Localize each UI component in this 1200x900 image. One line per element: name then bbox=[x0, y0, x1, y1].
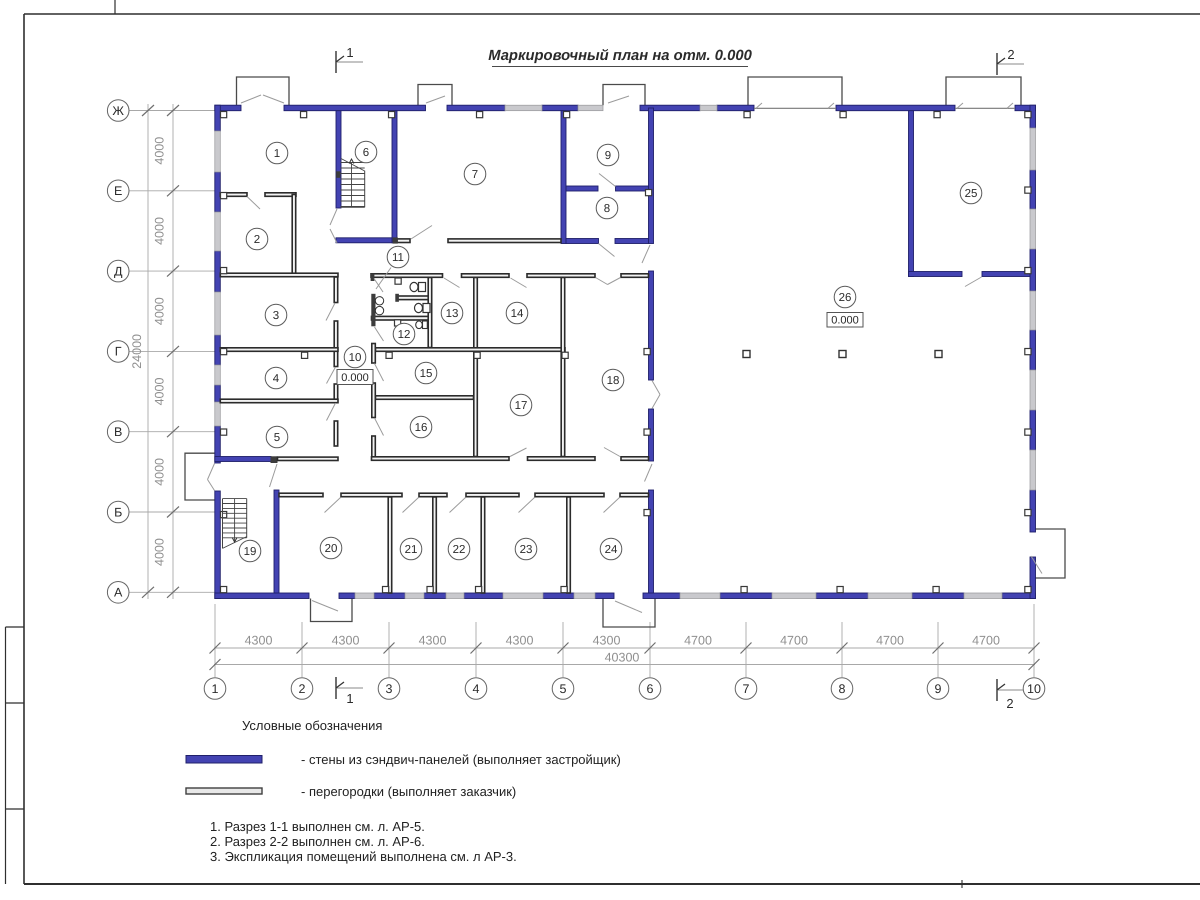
svg-text:А: А bbox=[114, 586, 123, 600]
svg-text:21: 21 bbox=[405, 544, 418, 556]
svg-text:1: 1 bbox=[274, 148, 280, 160]
svg-text:8: 8 bbox=[604, 203, 610, 215]
svg-text:4700: 4700 bbox=[876, 634, 904, 648]
svg-text:2: 2 bbox=[1007, 47, 1014, 62]
svg-text:В: В bbox=[114, 425, 122, 439]
svg-text:Маркировочный план на отм. 0.0: Маркировочный план на отм. 0.000 bbox=[488, 48, 752, 64]
svg-text:7: 7 bbox=[472, 169, 478, 181]
svg-text:5: 5 bbox=[274, 432, 280, 444]
svg-text:4000: 4000 bbox=[153, 297, 167, 325]
svg-text:14: 14 bbox=[511, 308, 524, 320]
svg-text:2: 2 bbox=[254, 234, 260, 246]
svg-text:4700: 4700 bbox=[972, 634, 1000, 648]
svg-text:1: 1 bbox=[346, 691, 353, 706]
svg-text:2. Разрез 2-2 выполнен см. л.: 2. Разрез 2-2 выполнен см. л. АР-6. bbox=[210, 834, 425, 849]
svg-text:Условные обозначения: Условные обозначения bbox=[242, 718, 382, 733]
svg-text:10: 10 bbox=[349, 352, 362, 364]
svg-text:Г: Г bbox=[115, 345, 122, 359]
svg-text:Ж: Ж bbox=[112, 104, 124, 118]
svg-text:0.000: 0.000 bbox=[831, 315, 859, 327]
svg-text:4700: 4700 bbox=[780, 634, 808, 648]
svg-text:26: 26 bbox=[839, 292, 852, 304]
svg-text:2: 2 bbox=[1006, 696, 1013, 711]
svg-text:17: 17 bbox=[515, 400, 528, 412]
svg-text:3: 3 bbox=[273, 310, 279, 322]
svg-text:5: 5 bbox=[560, 682, 567, 696]
svg-text:40300: 40300 bbox=[605, 651, 640, 665]
svg-text:- перегородки (выполняет заказ: - перегородки (выполняет заказчик) bbox=[301, 784, 516, 799]
svg-text:13: 13 bbox=[446, 308, 459, 320]
svg-text:15: 15 bbox=[420, 368, 433, 380]
svg-text:4000: 4000 bbox=[153, 458, 167, 486]
svg-text:4300: 4300 bbox=[593, 634, 621, 648]
svg-text:25: 25 bbox=[965, 188, 978, 200]
svg-text:4300: 4300 bbox=[419, 634, 447, 648]
svg-text:4000: 4000 bbox=[153, 378, 167, 406]
svg-text:4000: 4000 bbox=[153, 217, 167, 245]
svg-text:18: 18 bbox=[607, 375, 620, 387]
svg-text:0.000: 0.000 bbox=[341, 372, 369, 384]
svg-text:1. Разрез 1-1 выполнен см. л.: 1. Разрез 1-1 выполнен см. л. АР-5. bbox=[210, 819, 425, 834]
svg-text:2: 2 bbox=[299, 682, 306, 696]
svg-text:19: 19 bbox=[244, 546, 257, 558]
svg-text:23: 23 bbox=[520, 544, 533, 556]
svg-text:8: 8 bbox=[839, 682, 846, 696]
svg-text:24: 24 bbox=[605, 544, 618, 556]
svg-text:4000: 4000 bbox=[153, 137, 167, 165]
svg-text:20: 20 bbox=[325, 543, 338, 555]
svg-text:6: 6 bbox=[647, 682, 654, 696]
svg-text:24000: 24000 bbox=[130, 334, 144, 369]
svg-text:1: 1 bbox=[346, 45, 353, 60]
svg-text:4300: 4300 bbox=[245, 634, 273, 648]
svg-text:9: 9 bbox=[935, 682, 942, 696]
svg-text:- стены из сэндвич-панелей (вы: - стены из сэндвич-панелей (выполняет за… bbox=[301, 752, 621, 767]
svg-text:7: 7 bbox=[743, 682, 750, 696]
svg-text:12: 12 bbox=[398, 329, 411, 341]
svg-text:Б: Б bbox=[114, 505, 122, 519]
svg-text:16: 16 bbox=[415, 422, 428, 434]
svg-text:Е: Е bbox=[114, 184, 122, 198]
svg-text:4300: 4300 bbox=[332, 634, 360, 648]
svg-text:6: 6 bbox=[363, 147, 369, 159]
svg-text:9: 9 bbox=[605, 150, 611, 162]
svg-text:Д: Д bbox=[114, 264, 123, 278]
svg-text:10: 10 bbox=[1027, 682, 1041, 696]
svg-text:4: 4 bbox=[473, 682, 480, 696]
svg-text:3. Экспликация помещений выпол: 3. Экспликация помещений выполнена см. л… bbox=[210, 849, 517, 864]
svg-text:11: 11 bbox=[392, 252, 404, 264]
svg-text:4700: 4700 bbox=[684, 634, 712, 648]
svg-text:4000: 4000 bbox=[153, 538, 167, 566]
svg-text:4: 4 bbox=[273, 373, 280, 385]
svg-text:22: 22 bbox=[453, 544, 466, 556]
svg-text:1: 1 bbox=[212, 682, 219, 696]
svg-text:3: 3 bbox=[386, 682, 393, 696]
svg-text:4300: 4300 bbox=[506, 634, 534, 648]
